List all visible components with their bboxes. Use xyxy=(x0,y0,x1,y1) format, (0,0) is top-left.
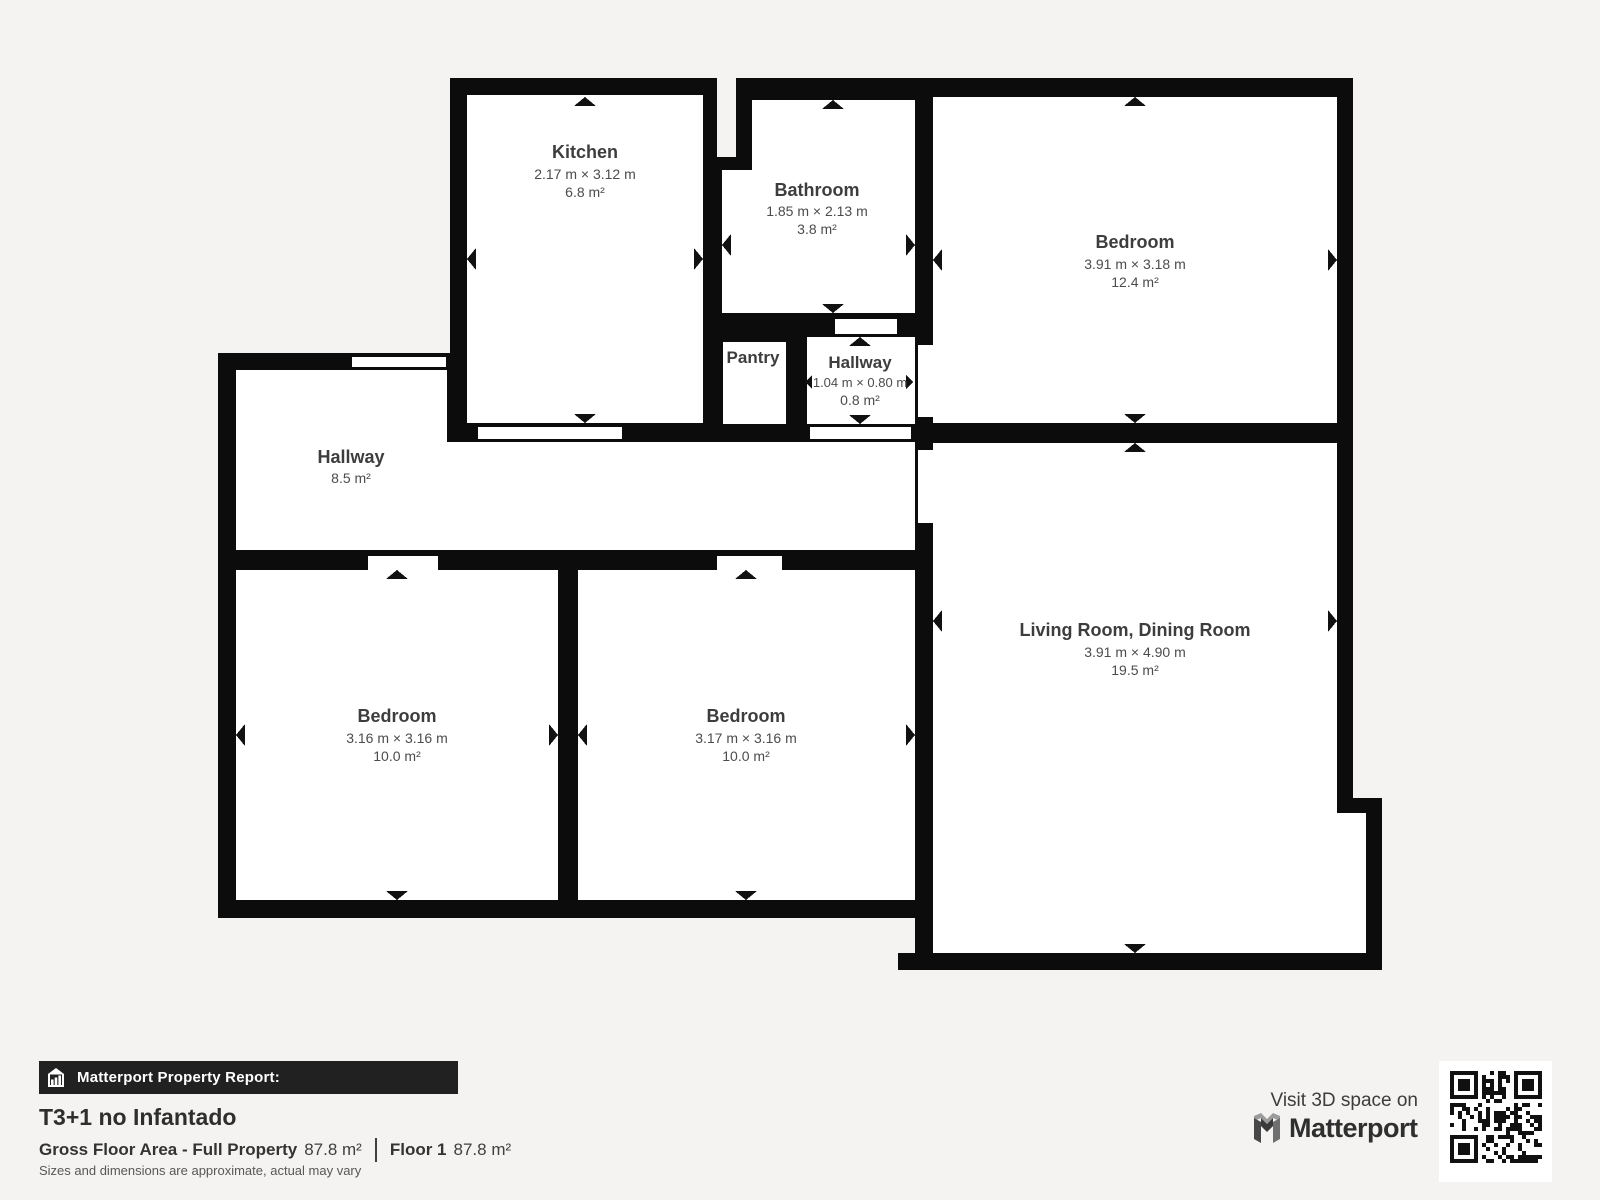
svg-text:Bedroom: Bedroom xyxy=(706,706,785,726)
floor-label: Floor 1 xyxy=(390,1140,447,1160)
svg-text:0.8 m²: 0.8 m² xyxy=(840,392,880,408)
svg-text:6.8 m²: 6.8 m² xyxy=(565,184,605,200)
svg-text:Hallway: Hallway xyxy=(317,447,384,467)
svg-text:Kitchen: Kitchen xyxy=(552,142,618,162)
report-header-label: Matterport Property Report: xyxy=(77,1069,280,1086)
svg-text:Hallway: Hallway xyxy=(828,353,892,372)
svg-text:Pantry: Pantry xyxy=(727,348,780,367)
visit-3d-text: Visit 3D space on xyxy=(1270,1090,1418,1112)
svg-text:1.85 m × 2.13 m: 1.85 m × 2.13 m xyxy=(766,203,868,219)
svg-text:3.16 m × 3.16 m: 3.16 m × 3.16 m xyxy=(346,730,448,746)
summary-divider xyxy=(375,1138,377,1162)
report-header-bar: Matterport Property Report: xyxy=(39,1061,458,1094)
matterport-brand: Matterport xyxy=(1254,1112,1418,1144)
floor-area-value: 87.8 m² xyxy=(454,1140,512,1160)
svg-text:10.0 m²: 10.0 m² xyxy=(722,748,770,764)
room-label-pantry: Pantry xyxy=(727,348,780,367)
gross-area-value: 87.8 m² xyxy=(304,1140,362,1160)
matterport-floorplan-report: Kitchen 2.17 m × 3.12 m 6.8 m² Bathroom … xyxy=(0,0,1600,1200)
svg-text:Bedroom: Bedroom xyxy=(1095,232,1174,252)
svg-text:12.4 m²: 12.4 m² xyxy=(1111,274,1159,290)
floor-plan: Kitchen 2.17 m × 3.12 m 6.8 m² Bathroom … xyxy=(0,0,1600,1010)
svg-text:19.5 m²: 19.5 m² xyxy=(1111,662,1159,678)
svg-text:8.5 m²: 8.5 m² xyxy=(331,470,371,486)
svg-text:10.0 m²: 10.0 m² xyxy=(373,748,421,764)
svg-text:2.17 m × 3.12 m: 2.17 m × 3.12 m xyxy=(534,166,636,182)
svg-text:3.91 m × 4.90 m: 3.91 m × 4.90 m xyxy=(1084,644,1186,660)
disclaimer-text: Sizes and dimensions are approximate, ac… xyxy=(39,1163,361,1178)
svg-text:3.91 m × 3.18 m: 3.91 m × 3.18 m xyxy=(1084,256,1186,272)
svg-text:Bedroom: Bedroom xyxy=(357,706,436,726)
gross-area-label: Gross Floor Area - Full Property xyxy=(39,1140,297,1160)
svg-text:3.8 m²: 3.8 m² xyxy=(797,221,837,237)
svg-text:1.04 m × 0.80 m: 1.04 m × 0.80 m xyxy=(813,375,907,390)
svg-text:Bathroom: Bathroom xyxy=(775,180,860,200)
svg-text:3.17 m × 3.16 m: 3.17 m × 3.16 m xyxy=(695,730,797,746)
matterport-logo-icon xyxy=(1254,1112,1280,1144)
property-house-icon xyxy=(48,1068,64,1087)
qr-code xyxy=(1439,1061,1552,1182)
area-summary: Gross Floor Area - Full Property 87.8 m²… xyxy=(39,1138,511,1162)
matterport-wordmark: Matterport xyxy=(1289,1113,1418,1144)
property-title: T3+1 no Infantado xyxy=(39,1104,236,1131)
svg-text:Living Room, Dining Room: Living Room, Dining Room xyxy=(1020,620,1251,640)
